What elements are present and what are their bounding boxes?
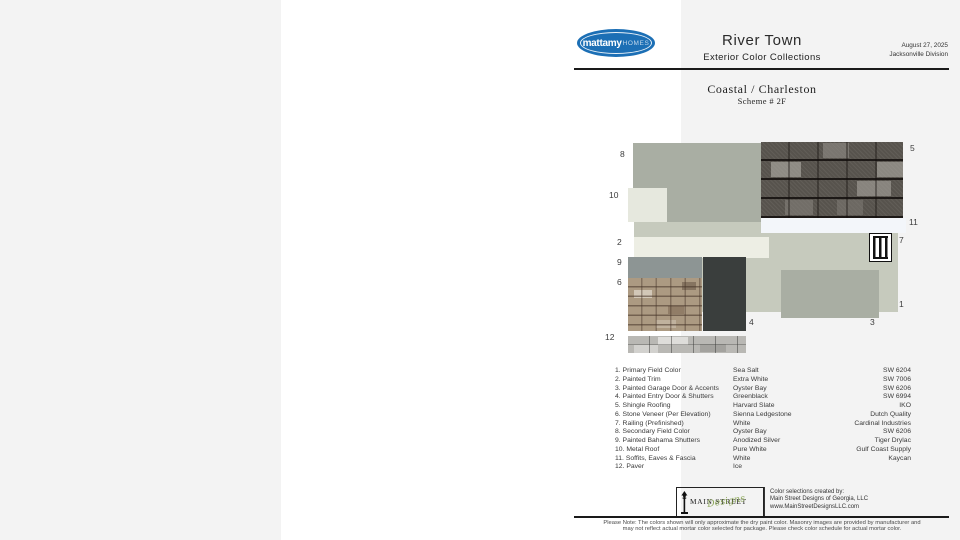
- legend-color: Ice: [733, 463, 821, 470]
- credit-line: Main Street Designs of Georgia, LLC: [770, 496, 940, 503]
- legend-row: 12. PaverIce: [615, 463, 911, 472]
- date-division-block: August 27, 2025 Jacksonville Division: [781, 41, 948, 59]
- legend-source: Cardinal Industries: [821, 420, 911, 427]
- callout-label-11: 11: [909, 217, 918, 227]
- legend-source: Dutch Quality: [821, 411, 911, 418]
- swatch-painted-trim-extra-white: [634, 237, 769, 258]
- legend-source: Tiger Drylac: [821, 437, 911, 444]
- callout-label-4: 4: [749, 317, 754, 327]
- legend-row: 5. Shingle RoofingHarvard SlateIKO: [615, 402, 911, 411]
- legend-color: Extra White: [733, 376, 821, 383]
- credits-block: Color selections created by: Main Street…: [770, 489, 940, 511]
- color-legend-list: 1. Primary Field ColorSea SaltSW 6204 2.…: [615, 367, 911, 472]
- legend-color: Anodized Silver: [733, 437, 821, 444]
- division-text: Jacksonville Division: [781, 50, 948, 59]
- legend-item: 2. Painted Trim: [615, 376, 733, 383]
- callout-label-5: 5: [910, 143, 915, 153]
- footer-divider-line: [574, 516, 949, 518]
- callout-label-6: 6: [617, 277, 622, 287]
- legend-color: White: [733, 420, 821, 427]
- legend-color: Sea Salt: [733, 367, 821, 374]
- legend-source: Kaycan: [821, 455, 911, 462]
- legend-row: 9. Painted Bahama ShuttersAnodized Silve…: [615, 437, 911, 446]
- footer-vertical-divider: [764, 487, 765, 517]
- designs-script-text: Designs: [706, 493, 745, 510]
- legend-color: Harvard Slate: [733, 402, 821, 409]
- legend-row: 8. Secondary Field ColorOyster BaySW 620…: [615, 428, 911, 437]
- main-street-designs-logo: MAIN STREET Designs: [676, 487, 764, 517]
- swatch-garage-door-oyster-bay: [781, 270, 879, 318]
- scheme-number: Scheme # 2F: [562, 96, 960, 106]
- legend-row: 4. Painted Entry Door & ShuttersGreenbla…: [615, 393, 911, 402]
- legend-source: Gulf Coast Supply: [821, 446, 911, 453]
- legend-row: 7. Railing (Prefinished)WhiteCardinal In…: [615, 420, 911, 429]
- railing-icon: [869, 233, 892, 262]
- callout-label-12: 12: [605, 332, 614, 342]
- swatch-entry-door-greenblack: [703, 257, 746, 331]
- callout-label-10: 10: [609, 190, 618, 200]
- legend-item: 1. Primary Field Color: [615, 367, 733, 374]
- legend-color: White: [733, 455, 821, 462]
- swatch-bahama-shutters-anodized-silver: [628, 257, 702, 278]
- legend-row: 1. Primary Field ColorSea SaltSW 6204: [615, 367, 911, 376]
- legend-row: 3. Painted Garage Door & AccentsOyster B…: [615, 385, 911, 394]
- shingle-roofing-image: [761, 142, 903, 218]
- legend-row: 2. Painted TrimExtra WhiteSW 7006: [615, 376, 911, 385]
- scheme-collection-title: Coastal / Charleston: [562, 82, 960, 97]
- legend-item: 4. Painted Entry Door & Shutters: [615, 393, 733, 400]
- legend-source: SW 6206: [821, 428, 911, 435]
- paver-image: [628, 336, 746, 353]
- legend-item: 7. Railing (Prefinished): [615, 420, 733, 427]
- legend-color: Greenblack: [733, 393, 821, 400]
- callout-label-8: 8: [620, 149, 625, 159]
- swatch-metal-roof-pure-white: [628, 188, 667, 222]
- legend-item: 6. Stone Veneer (Per Elevation): [615, 411, 733, 418]
- legend-source: SW 6994: [821, 393, 911, 400]
- credit-line: Color selections created by:: [770, 489, 940, 496]
- legend-source: IKO: [821, 402, 911, 409]
- header-divider-line: [574, 68, 949, 70]
- stone-veneer-image: [628, 278, 702, 331]
- legend-source: SW 6204: [821, 367, 911, 374]
- disclaimer-line-2: may not reflect actual mortar color sele…: [562, 526, 960, 533]
- railing-bars-icon: [873, 236, 888, 259]
- credit-website: www.MainStreetDesignsLLC.com: [770, 504, 940, 511]
- date-text: August 27, 2025: [781, 41, 948, 50]
- legend-item: 12. Paver: [615, 463, 733, 470]
- legend-item: 3. Painted Garage Door & Accents: [615, 385, 733, 392]
- legend-item: 10. Metal Roof: [615, 446, 733, 453]
- legend-color: Sienna Ledgestone: [733, 411, 821, 418]
- legend-item: 9. Painted Bahama Shutters: [615, 437, 733, 444]
- legend-source: SW 6206: [821, 385, 911, 392]
- lamppost-icon: [680, 491, 689, 515]
- legend-source: SW 7006: [821, 376, 911, 383]
- swatch-soffits-eaves-fascia-white: [761, 218, 906, 233]
- legend-item: 8. Secondary Field Color: [615, 428, 733, 435]
- legend-row: 10. Metal RoofPure WhiteGulf Coast Suppl…: [615, 446, 911, 455]
- callout-label-2: 2: [617, 237, 622, 247]
- legend-row: 6. Stone Veneer (Per Elevation)Sienna Le…: [615, 411, 911, 420]
- callout-label-3: 3: [870, 317, 875, 327]
- disclaimer-text: Please Note: The colors shown will only …: [562, 520, 960, 534]
- legend-row: 11. Soffits, Eaves & FasciaWhiteKaycan: [615, 455, 911, 464]
- callout-label-7: 7: [899, 235, 904, 245]
- legend-color: Oyster Bay: [733, 428, 821, 435]
- callout-label-9: 9: [617, 257, 622, 267]
- legend-item: 5. Shingle Roofing: [615, 402, 733, 409]
- disclaimer-line-1: Please Note: The colors shown will only …: [562, 520, 960, 527]
- legend-item: 11. Soffits, Eaves & Fascia: [615, 455, 733, 462]
- legend-color: Oyster Bay: [733, 385, 821, 392]
- document-page: mattamyHOMES River Town Exterior Color C…: [281, 0, 681, 540]
- legend-color: Pure White: [733, 446, 821, 453]
- callout-label-1: 1: [899, 299, 904, 309]
